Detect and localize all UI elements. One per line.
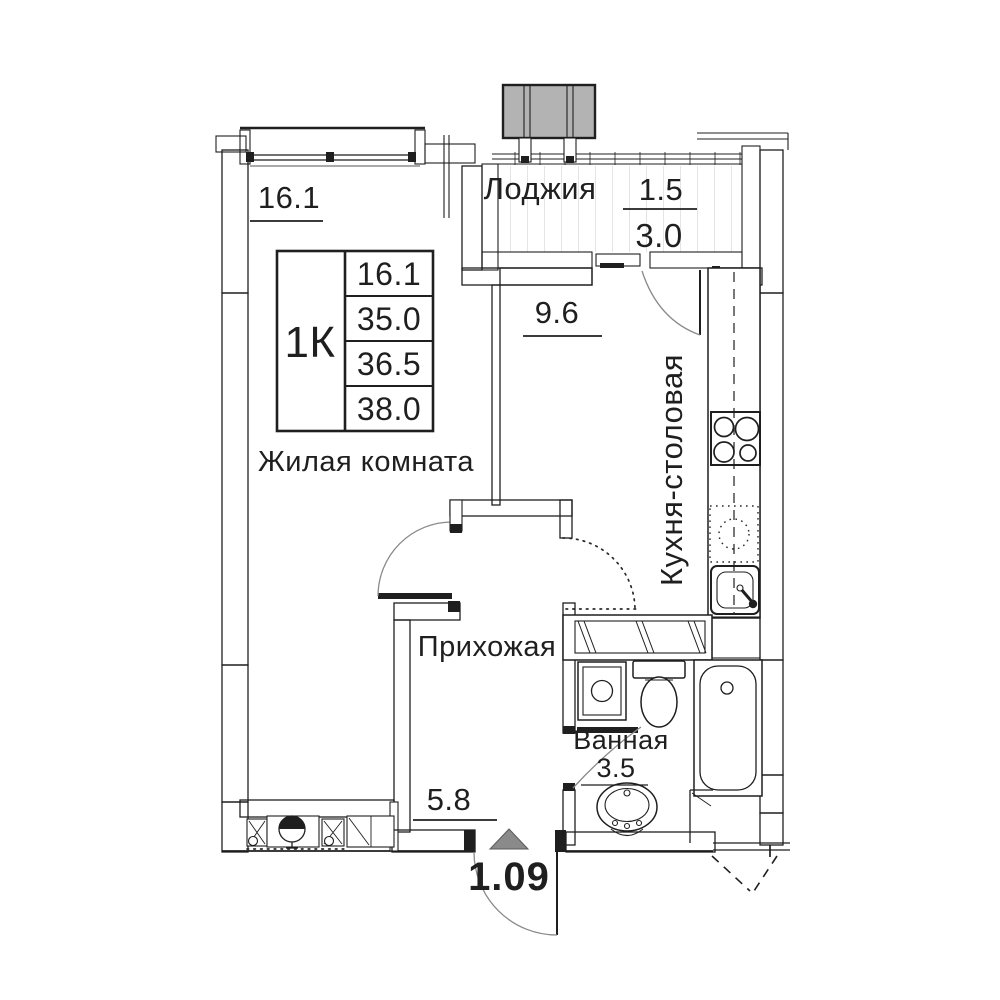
entrance-stop-right bbox=[555, 830, 566, 852]
bottom-wall-left-of-entrance bbox=[392, 830, 475, 852]
kitchen-top-wall-blocks bbox=[500, 268, 592, 285]
loggia-label: Лоджия bbox=[484, 171, 597, 206]
living-area-label: 16.1 bbox=[258, 180, 320, 215]
bracket-right-pin bbox=[325, 837, 334, 846]
entrance: 1.09 bbox=[468, 829, 557, 935]
toilet-bowl bbox=[641, 677, 677, 727]
kitchen-label: Кухня-столовая bbox=[654, 354, 689, 586]
bathroom-label: Ванная bbox=[573, 725, 668, 755]
kitchen: 9.6 Кухня-столовая bbox=[450, 268, 760, 618]
hallway-label: Прихожая bbox=[418, 631, 556, 663]
hallway-left-wall bbox=[394, 620, 410, 832]
table-value-row3: 36.5 bbox=[357, 346, 421, 382]
washer-body bbox=[578, 662, 626, 720]
neighbor-area bbox=[690, 790, 777, 891]
sink-faucet-base bbox=[749, 600, 757, 608]
living-room: 16.1 1К 16.1 35.0 36.5 38.0 Жилая комнат… bbox=[250, 180, 474, 612]
window-mullion-right bbox=[408, 152, 416, 162]
ac-foot-left bbox=[521, 156, 529, 163]
ac-unit-body bbox=[503, 85, 595, 138]
bottom-edge-right bbox=[713, 843, 790, 850]
floor-plan-canvas: Лоджия 1.5 3.0 16.1 1К 16.1 35.0 36.5 38… bbox=[0, 0, 1000, 1000]
partition-stub-right-end bbox=[560, 500, 572, 538]
ac-foot-right bbox=[566, 156, 574, 163]
table-value-row4: 38.0 bbox=[357, 391, 421, 427]
wall-left-hatch-bottom bbox=[222, 665, 248, 802]
floor-plan-drawing: Лоджия 1.5 3.0 16.1 1К 16.1 35.0 36.5 38… bbox=[0, 0, 1000, 1000]
loggia-insulation-bottom-right bbox=[650, 252, 742, 268]
balcony-door-sill-mark bbox=[600, 263, 624, 268]
entrance-stop-left bbox=[464, 830, 475, 852]
loggia-wall-left-blocks bbox=[462, 166, 482, 270]
bracket-left-pin bbox=[249, 837, 258, 846]
window-jamb-right bbox=[415, 130, 425, 164]
wall-right-hatch-top bbox=[760, 150, 783, 293]
neighbor-door-swing-dashed bbox=[712, 856, 777, 891]
corner-step bbox=[690, 790, 713, 843]
living-door-leaf bbox=[378, 593, 452, 599]
open-passage-swing-dotted bbox=[563, 538, 635, 610]
wall-right-hatch-corner bbox=[760, 775, 783, 813]
wall-left-blocks bbox=[222, 293, 248, 665]
window-mullion-left bbox=[246, 152, 254, 162]
condenser-basket bbox=[247, 816, 394, 849]
wall-right-bottom bbox=[760, 813, 783, 845]
wall-left-hatch-top bbox=[222, 150, 248, 293]
pedestal-sink-icon bbox=[597, 783, 657, 836]
partition-stub-wall bbox=[450, 500, 572, 516]
table-value-row2: 35.0 bbox=[357, 301, 421, 337]
bathtub-icon bbox=[694, 660, 762, 796]
wall-left-corner bbox=[222, 802, 248, 852]
cabinet-box bbox=[347, 816, 394, 847]
wall-right-blocks bbox=[760, 293, 783, 660]
insulation-strip bbox=[425, 144, 475, 163]
table-value-row1: 16.1 bbox=[357, 256, 421, 292]
entrance-arrow-icon bbox=[490, 829, 528, 849]
balcony-door-swing-arc bbox=[642, 271, 700, 335]
apartment-type: 1К bbox=[284, 318, 335, 367]
bathtub-outer bbox=[694, 660, 762, 796]
downpipe bbox=[444, 135, 449, 218]
kitchen-area-label: 9.6 bbox=[535, 295, 580, 330]
duct-hatched-block bbox=[712, 617, 760, 658]
bathroom-area-label: 3.5 bbox=[596, 753, 635, 783]
washing-machine-icon bbox=[578, 662, 626, 720]
living-bottom-wall bbox=[240, 800, 394, 817]
sink-faucet-handle bbox=[737, 585, 743, 591]
bathroom: Ванная 3.5 bbox=[563, 615, 762, 836]
toilet-tank bbox=[633, 661, 685, 678]
loggia-insulation-right bbox=[742, 146, 760, 268]
window-mullion-center bbox=[326, 152, 334, 162]
apartment-info-table: 1К 16.1 35.0 36.5 38.0 bbox=[277, 251, 433, 431]
entrance-number-label: 1.09 bbox=[468, 855, 550, 899]
loggia-area-full: 3.0 bbox=[635, 217, 682, 254]
wall-right-hatch-bath bbox=[760, 660, 783, 775]
loggia-area-coeff: 1.5 bbox=[639, 172, 684, 207]
toilet-icon bbox=[633, 661, 685, 727]
bathroom-bottom-wall bbox=[566, 832, 715, 852]
living-door-swing-arc bbox=[378, 522, 452, 596]
hallway-area-label: 5.8 bbox=[427, 782, 472, 817]
ac-outdoor-unit bbox=[503, 85, 595, 163]
kitchen-living-partition bbox=[492, 285, 500, 505]
living-door-stop-top bbox=[450, 524, 462, 533]
living-room-label: Жилая комната bbox=[258, 446, 474, 478]
